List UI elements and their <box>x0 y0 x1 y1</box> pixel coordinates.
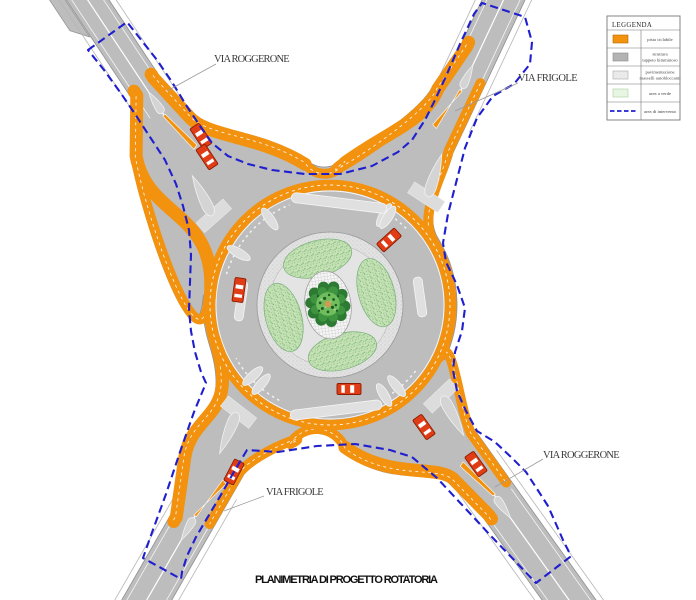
svg-text:area di intervento: area di intervento <box>644 109 677 114</box>
svg-text:VIA FRIGOLE: VIA FRIGOLE <box>518 73 578 84</box>
svg-text:VIA ROGGERONE: VIA ROGGERONE <box>214 54 290 65</box>
svg-text:tappeto bituminoso: tappeto bituminoso <box>642 58 678 63</box>
svg-text:VIA ROGGERONE: VIA ROGGERONE <box>543 450 620 461</box>
svg-text:pavimentazione: pavimentazione <box>645 70 674 75</box>
svg-text:pista ciclabile: pista ciclabile <box>647 37 672 42</box>
svg-text:PLANIMETRIA DI PROGETTO ROTATO: PLANIMETRIA DI PROGETTO ROTATORIA <box>255 574 438 586</box>
svg-text:VIA FRIGOLE: VIA FRIGOLE <box>266 487 324 498</box>
svg-text:area a verde: area a verde <box>649 91 671 96</box>
svg-text:masselli autobloccanti: masselli autobloccanti <box>640 76 682 81</box>
svg-text:LEGGENDA: LEGGENDA <box>612 22 652 29</box>
svg-text:struttura: struttura <box>652 52 667 57</box>
